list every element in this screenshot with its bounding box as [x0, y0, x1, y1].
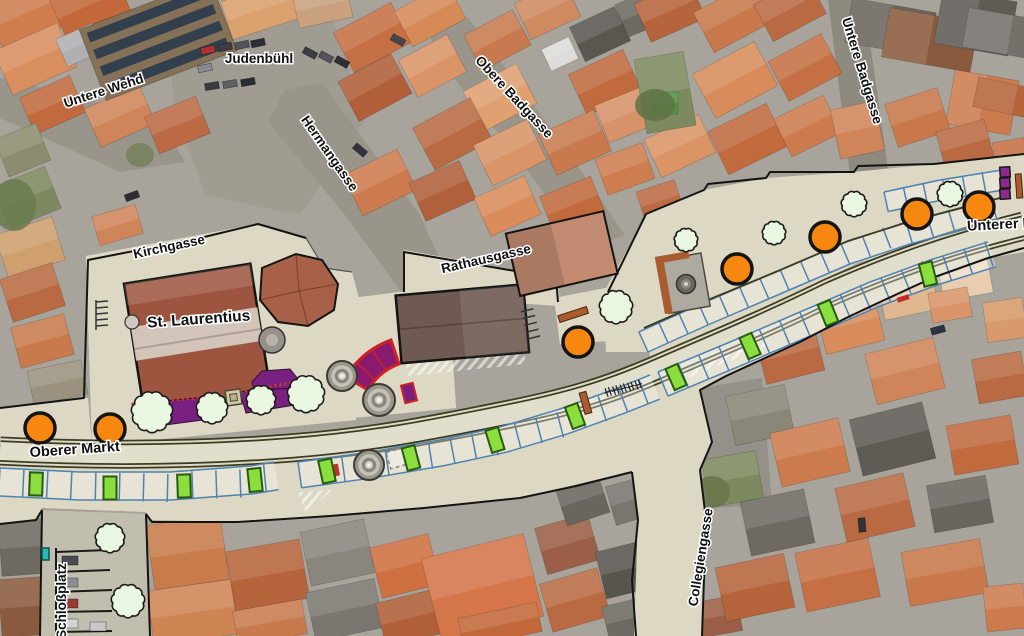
bench	[1015, 174, 1023, 198]
planned-tree	[810, 222, 840, 252]
roof-building	[946, 415, 1019, 476]
street-label-judenbuehl: Judenbühl	[225, 51, 293, 66]
roof-building	[754, 0, 827, 42]
parked-car	[930, 325, 945, 335]
existing-tree	[196, 393, 227, 424]
existing-tree	[599, 291, 632, 324]
utility-marker	[42, 548, 49, 560]
roof-building	[768, 34, 842, 102]
purple-plan-marker	[1000, 178, 1011, 189]
fountain-circle	[327, 361, 357, 391]
purple-plan-marker	[1000, 167, 1011, 178]
existing-tree	[287, 376, 324, 413]
planned-tree	[563, 327, 593, 357]
planned-tree	[25, 413, 55, 443]
roof-building	[901, 538, 989, 606]
roof-building	[300, 519, 375, 586]
roof-building	[849, 402, 936, 476]
roof-building	[971, 351, 1024, 404]
roof-building	[146, 515, 229, 590]
roof-building	[982, 297, 1024, 342]
purple-plan-marker	[1000, 189, 1011, 200]
existing-tree	[937, 181, 963, 206]
roof-building	[92, 204, 144, 245]
planned-tree	[902, 199, 932, 229]
roof-building	[634, 0, 706, 42]
street-label-schlossplatz: Schloßplatz	[54, 563, 69, 636]
existing-tree	[131, 392, 172, 433]
aerial-plan-map[interactable]: Untere Wehd Judenbühl Hermangasse Obere …	[0, 0, 1024, 636]
parked-car	[858, 518, 866, 533]
roof-building	[409, 161, 476, 222]
town-hall-building	[396, 284, 529, 363]
existing-tree	[762, 221, 786, 244]
reserved-parking-stall	[177, 474, 191, 497]
reserved-parking-stall	[247, 468, 262, 492]
roof-building	[983, 583, 1024, 632]
roof-building	[835, 473, 916, 542]
planned-tree	[722, 254, 752, 284]
roof-building	[0, 519, 44, 577]
roof-building	[795, 538, 881, 612]
roof-building	[306, 578, 385, 636]
reserved-parking-stall	[104, 477, 117, 500]
roof-building	[11, 314, 75, 369]
existing-tree	[246, 386, 275, 415]
square-fountain-jet	[684, 282, 688, 286]
roof-building	[715, 553, 795, 621]
roof-building	[926, 475, 993, 533]
fountain-circle	[363, 384, 395, 416]
roof-building	[541, 37, 578, 71]
roof-building	[928, 287, 973, 323]
church-side-turret	[125, 315, 139, 329]
roof-building	[865, 337, 946, 404]
parked-car	[124, 190, 140, 201]
existing-tree	[841, 191, 867, 216]
map-canvas[interactable]: Untere Wehd Judenbühl Hermangasse Obere …	[0, 0, 1024, 636]
fountain-circle	[354, 450, 384, 480]
roof-building	[539, 568, 610, 633]
existing-tree	[674, 228, 698, 251]
existing-tree	[95, 524, 124, 553]
street-label-unterer-markt: Unterer M	[967, 215, 1024, 235]
church-tower-dome-top	[266, 334, 278, 346]
reserved-parking-stall	[29, 472, 43, 495]
existing-tree	[111, 585, 144, 618]
